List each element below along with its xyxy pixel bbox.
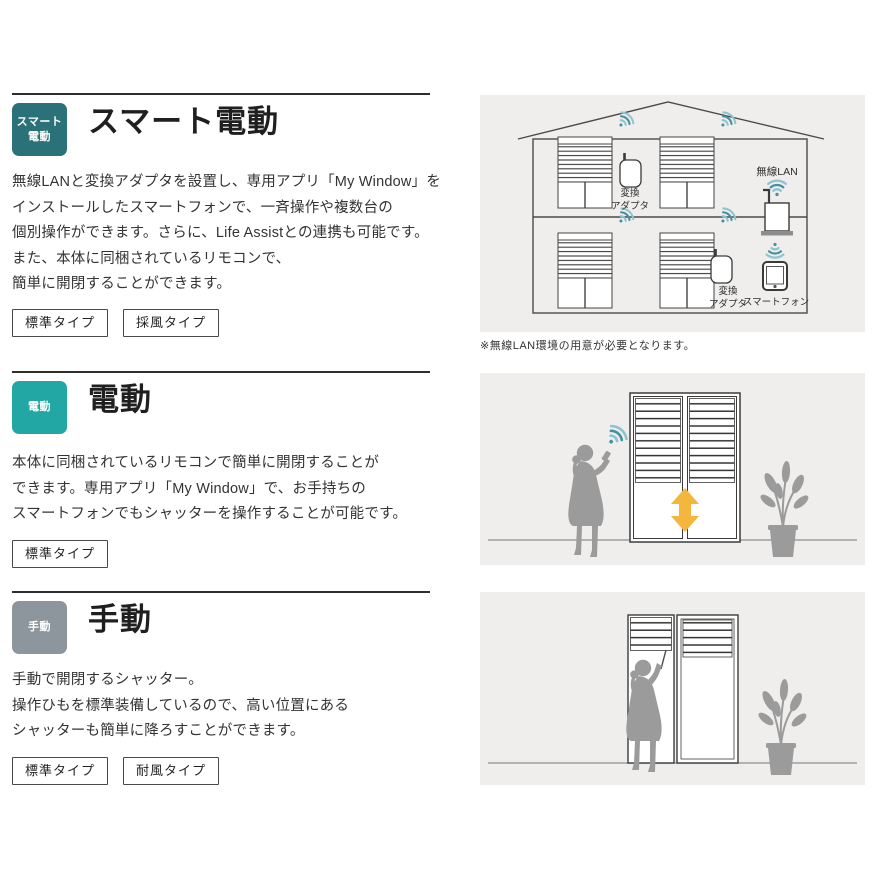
standard-type-button[interactable]: 標準タイプ [12,309,108,337]
adapter-label: 変換 [718,285,738,297]
wind-resistant-type-button[interactable]: 耐風タイプ [123,757,219,785]
smartphone-label: スマートフォン [743,297,809,308]
window-shutter-lower-right [660,233,714,308]
adapter-label: 変換 [620,187,640,199]
section-divider [12,93,430,95]
wireless-lan-label: 無線LAN [756,165,797,178]
wireless-lan-note: ※無線LAN環境の用意が必要となります。 [480,337,695,353]
section-title-smart-electric: スマート電動 [88,102,279,142]
standard-type-button[interactable]: 標準タイプ [12,540,108,568]
section-title-manual: 手動 [88,600,152,640]
type-button-row: 標準タイプ 耐風タイプ [12,757,219,785]
type-button-row: 標準タイプ [12,540,108,568]
product-page: スマート 電動 スマート電動 無線LANと変換アダプタを設置し、専用アプリ「My… [0,0,884,884]
section-title-electric: 電動 [88,380,152,420]
type-button-row: 標準タイプ 採風タイプ [12,309,219,337]
section-body-electric: 本体に同梱されているリモコンで簡単に開閉することが できます。専用アプリ「My … [12,451,442,528]
window-shutter-upper-right [660,137,714,208]
electric-shutter-illustration [480,373,865,565]
standard-type-button[interactable]: 標準タイプ [12,757,108,785]
section-divider [12,371,430,373]
manual-badge: 手動 [12,601,67,654]
adapter-label: アダプタ [611,200,649,212]
electric-badge: 電動 [12,381,67,434]
section-body-smart-electric: 無線LANと変換アダプタを設置し、専用アプリ「My Window」を インストー… [12,170,442,298]
smart-electric-badge: スマート 電動 [12,103,67,156]
section-divider [12,591,430,593]
manual-shutter-illustration [480,592,865,785]
smartphone-icon [763,262,787,290]
window-shutter-lower-left [558,233,612,308]
section-body-manual: 手動で開閉するシャッター。 操作ひもを標準装備しているので、高い位置にある シャ… [12,668,442,745]
window-shutter-upper-left [558,137,612,208]
adapter-label: アダプタ [709,298,747,310]
smart-house-illustration: 変換 アダプタ 変換 アダプタ 無線LAN スマートフォン [480,95,865,332]
ventilation-type-button[interactable]: 採風タイプ [123,309,219,337]
